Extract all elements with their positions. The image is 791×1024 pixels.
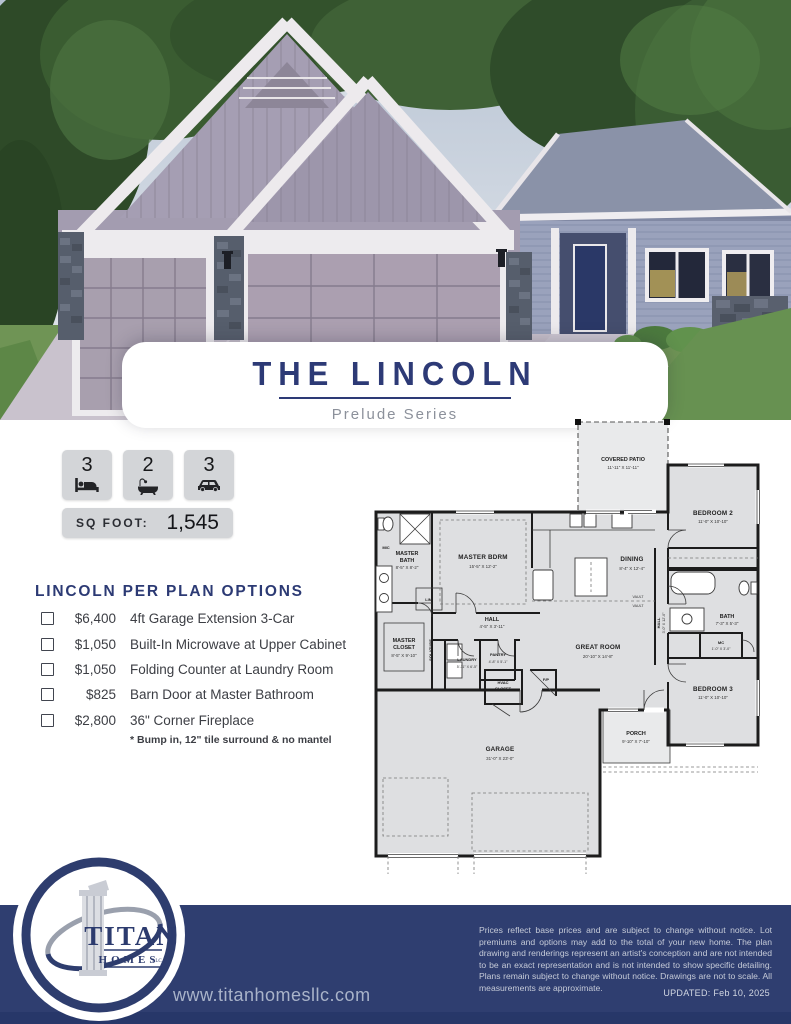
svg-text:PORCH: PORCH [626,731,646,737]
option-price: $2,800 [54,713,116,728]
svg-text:4'-8" X 5'-1": 4'-8" X 5'-1" [489,660,508,664]
label-mic: MIC [382,545,389,550]
svg-text:MASTER: MASTER [393,638,416,644]
stat-garage: 3 [184,450,234,500]
svg-text:BATH: BATH [720,614,735,620]
sqfoot-box: SQ FOOT: 1,545 [62,508,233,538]
option-price: $1,050 [54,637,116,652]
svg-text:8'-4" X 12'-4": 8'-4" X 12'-4" [619,566,645,571]
options-list: $6,400 4ft Garage Extension 3-Car $1,050… [0,606,370,746]
option-row: $825 Barn Door at Master Bathroom [0,682,370,707]
svg-text:PANTRY: PANTRY [490,652,506,657]
svg-text:GREAT ROOM: GREAT ROOM [576,644,621,651]
svg-text:8'-5" X 9'-10": 8'-5" X 9'-10" [391,653,417,658]
label-linen: LIN. [425,597,433,602]
svg-text:3'-0" X 12'-0": 3'-0" X 12'-0" [662,612,666,633]
disclaimer-text: Prices reflect base prices and are subje… [479,925,772,994]
svg-text:15'-5" X 12'-2": 15'-5" X 12'-2" [469,564,497,569]
updated-date: UPDATED: Feb 10, 2025 [663,988,770,998]
svg-text:7'-3" X 5'-3": 7'-3" X 5'-3" [716,621,739,626]
bed-icon [62,478,112,498]
svg-text:BATH: BATH [400,558,415,564]
option-checkbox[interactable] [41,688,54,701]
stats-row: 3 2 [62,450,234,500]
option-checkbox[interactable] [41,612,54,625]
svg-text:8'-5" X 8'-2": 8'-5" X 8'-2" [396,565,419,570]
option-label: 4ft Garage Extension 3-Car [130,611,294,626]
svg-text:HALL: HALL [485,617,500,623]
svg-text:BEDROOM 3: BEDROOM 3 [693,686,733,693]
svg-text:LAUNDRY: LAUNDRY [457,657,477,662]
svg-text:CLOSET: CLOSET [495,686,512,691]
car-icon [184,478,234,497]
svg-text:MASTER: MASTER [396,551,419,557]
svg-text:31'-0" X 23'-0": 31'-0" X 23'-0" [486,756,514,761]
option-label: 36" Corner Fireplace [130,713,254,728]
svg-text:MC: MC [718,640,724,645]
room-label-master-closet: MASTER CLOSET 8'-5" X 9'-10" [391,638,417,658]
svg-text:BEDROOM 2: BEDROOM 2 [693,510,733,517]
option-label: Folding Counter at Laundry Room [130,662,333,677]
website-link[interactable]: www.titanhomesllc.com [173,985,371,1006]
option-price: $825 [54,687,116,702]
svg-text:COVERED PATIO: COVERED PATIO [601,457,645,463]
option-note: * Bump in, 12" tile surround & no mantel [130,734,370,746]
option-price: $6,400 [54,611,116,626]
options-heading: LINCOLN PER PLAN OPTIONS [35,583,304,601]
svg-text:9'-10" X 7'-10": 9'-10" X 7'-10" [622,739,650,744]
floor-plan: COVERED PATIO 11'-11" X 11'-11" BEDROOM … [370,418,791,878]
baths-count: 2 [123,455,173,475]
option-label: Barn Door at Master Bathroom [130,687,314,702]
label-solatube: SOLATUBE [428,639,433,661]
option-checkbox[interactable] [41,663,54,676]
svg-text:DINING: DINING [620,556,643,563]
stat-beds: 3 [62,450,112,500]
title-card: THE LINCOLN Prelude Series [122,342,668,428]
svg-text:5'-11" X 6'-5": 5'-11" X 6'-5" [457,665,478,669]
sqfoot-label: SQ FOOT: [76,516,149,530]
svg-text:HVAC: HVAC [497,680,508,685]
flyer-page: THE LINCOLN Prelude Series 3 2 [0,0,791,1024]
logo-sub: HOMES [99,954,160,966]
svg-text:11'-0" X 10'-10": 11'-0" X 10'-10" [698,695,728,700]
beds-count: 3 [62,455,112,475]
svg-text:MASTER BDRM: MASTER BDRM [458,554,507,561]
stat-baths: 2 [123,450,173,500]
option-row: $1,050 Folding Counter at Laundry Room [0,657,370,682]
sqfoot-value: 1,545 [166,511,219,535]
option-row: $1,050 Built-In Microwave at Upper Cabin… [0,631,370,656]
option-checkbox[interactable] [41,714,54,727]
page-title: THE LINCOLN [122,355,668,394]
label-vault-1: VAULT [632,595,644,599]
label-vault-2: VAULT [632,604,644,608]
option-label: Built-In Microwave at Upper Cabinet [130,637,346,652]
svg-text:11'-11" X 11'-11": 11'-11" X 11'-11" [607,465,639,470]
svg-text:1'-0" X 3'-0": 1'-0" X 3'-0" [712,647,731,651]
option-row: $6,400 4ft Garage Extension 3-Car [0,606,370,631]
option-row: $2,800 36" Corner Fireplace [0,708,370,733]
option-price: $1,050 [54,662,116,677]
option-checkbox[interactable] [41,638,54,651]
svg-text:HALL: HALL [656,617,661,628]
svg-text:11'-0" X 10'-10": 11'-0" X 10'-10" [698,519,728,524]
svg-text:4'-5" X 3'-11": 4'-5" X 3'-11" [480,624,505,629]
svg-text:20'-10" X 14'-8": 20'-10" X 14'-8" [583,654,614,659]
logo-name: TITAN [84,921,178,951]
titan-homes-logo: TITAN HOMES LLC [10,846,188,1024]
svg-text:CLOSET: CLOSET [393,645,416,651]
label-fireplace: F/P [543,677,550,682]
svg-text:GARAGE: GARAGE [486,746,515,753]
bath-icon [123,478,173,500]
garage-count: 3 [184,455,234,475]
logo-llc: LLC [152,959,162,964]
title-underline [279,397,511,399]
